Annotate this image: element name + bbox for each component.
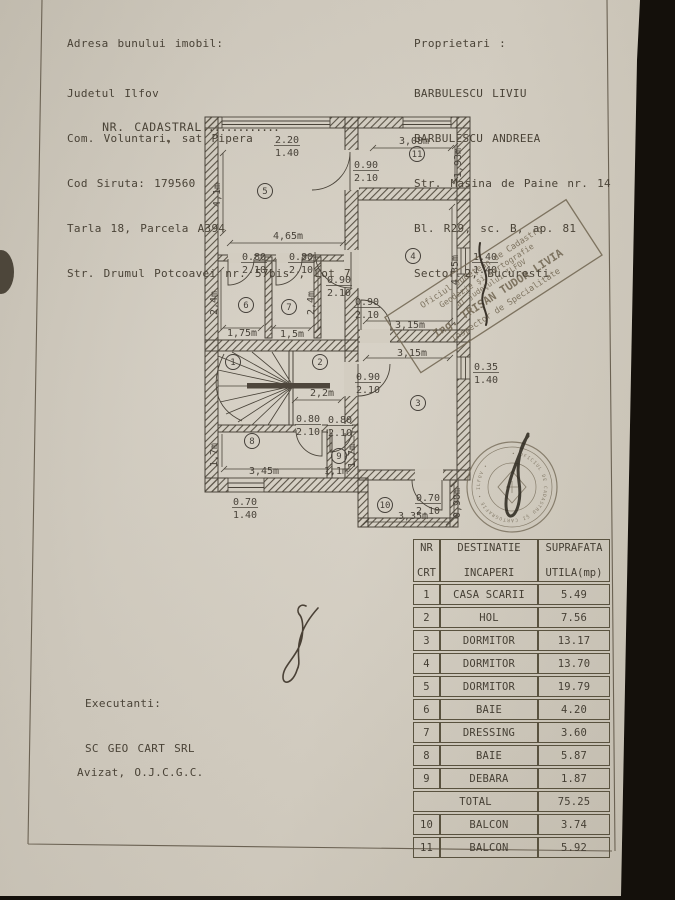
table-cell: 10 [413, 814, 440, 835]
edge-shadow-blob [0, 250, 14, 294]
plan-label: 1,7m [347, 444, 358, 468]
table-header-row: NRCRTDESTINATIEINCAPERISUPRAFATAUTILA(mp… [413, 539, 610, 582]
plan-label: 1.40 [474, 375, 498, 386]
cadastral-label: NR. CADASTRAL............. [64, 106, 279, 148]
table-header-cell: SUPRAFATAUTILA(mp) [538, 539, 610, 582]
address-line: Cod Siruta: 179560 [67, 176, 351, 191]
table-cell: 13.70 [538, 653, 610, 674]
table-cell: DORMITOR [440, 653, 538, 674]
plan-label: 0.90 [356, 372, 380, 383]
table-row: TOTAL75.25 [413, 791, 610, 812]
handwritten-signature [283, 605, 318, 682]
table-cell: 4 [413, 653, 440, 674]
plan-label: 2.10 [416, 506, 440, 517]
table-cell: 6 [413, 699, 440, 720]
owner-line: BARBULESCU LIVIU [414, 86, 611, 101]
plan-label: 2.10 [356, 385, 380, 396]
plan-label: 1 [230, 358, 235, 368]
table-cell: 9 [413, 768, 440, 789]
plan-label: 10 [380, 501, 391, 511]
table-cell: 2 [413, 607, 440, 628]
table-cell: BALCON [440, 837, 538, 858]
plan-label: 0.90 [355, 297, 379, 308]
table-row: 5DORMITOR19.79 [413, 676, 610, 697]
plan-label: 0.35 [474, 362, 498, 373]
table-cell: TOTAL [413, 791, 538, 812]
owner-line: Sector 2, Bucuresti [414, 266, 611, 281]
owner-line: Str. Masina de Paine nr. 14 [414, 176, 611, 191]
plan-label: 2.10 [354, 173, 378, 184]
table-cell: 5.49 [538, 584, 610, 605]
plan-label: 2 [317, 358, 322, 368]
plan-label: 3 [415, 399, 420, 409]
plan-label: 1,5m [280, 329, 304, 340]
plan-label: 3,15m [395, 320, 425, 331]
plan-label: 8 [249, 437, 254, 447]
round-stamp-signature [506, 434, 528, 516]
table-cell: DEBARA [440, 768, 538, 789]
table-cell: DORMITOR [440, 676, 538, 697]
plan-label: 1.40 [233, 510, 257, 521]
table-cell: HOL [440, 607, 538, 628]
table-cell: 11 [413, 837, 440, 858]
owners-block: Proprietari : BARBULESCU LIVIU BARBULESC… [414, 6, 611, 311]
table-cell: CASA SCARII [440, 584, 538, 605]
table-cell: 4.20 [538, 699, 610, 720]
address-block: Adresa bunului imobil: Judetul Ilfov Com… [67, 6, 351, 311]
table-row: 6BAIE4.20 [413, 699, 610, 720]
table-cell: 3 [413, 630, 440, 651]
address-line: Tarla 18, Parcela A394 [67, 221, 351, 236]
plan-label: 1,7m [209, 443, 220, 467]
plan-label: 1,75m [227, 328, 257, 339]
plan-label: 2.10 [296, 427, 320, 438]
table-row: 9DEBARA1.87 [413, 768, 610, 789]
table-row: 4DORMITOR13.70 [413, 653, 610, 674]
table-header-cell: NRCRT [413, 539, 440, 582]
plan-label: 1,1m [324, 466, 348, 477]
table-cell: 19.79 [538, 676, 610, 697]
table-row: 1CASA SCARII5.49 [413, 584, 610, 605]
plan-label: 2,2m [310, 388, 334, 399]
table-cell: 7.56 [538, 607, 610, 628]
plan-label: 9 [336, 452, 341, 462]
plan-label: 0.80 [296, 414, 320, 425]
table-cell: 1.87 [538, 768, 610, 789]
avizat-label: Avizat, O.J.C.G.C. [77, 765, 204, 780]
table-cell: 5 [413, 676, 440, 697]
table-cell: 7 [413, 722, 440, 743]
address-line: Judetul Ilfov [67, 86, 351, 101]
owner-line: BARBULESCU ANDREEA [414, 131, 611, 146]
address-title: Adresa bunului imobil: [67, 36, 351, 51]
round-stamp: • OFICIUL DE CADASTRU ŞI CARTOGRAFIE • I… [467, 442, 557, 532]
plan-label: 0.70 [416, 493, 440, 504]
plan-label: 0,90m [452, 488, 463, 518]
table-header-cell: DESTINATIEINCAPERI [440, 539, 538, 582]
table-cell: 13.17 [538, 630, 610, 651]
table-cell: BALCON [440, 814, 538, 835]
areas-table: NRCRTDESTINATIEINCAPERISUPRAFATAUTILA(mp… [413, 537, 610, 860]
table-row: 8BAIE5.87 [413, 745, 610, 766]
table-cell: BAIE [440, 745, 538, 766]
table-cell: 3.74 [538, 814, 610, 835]
plan-label: 3,45m [249, 466, 279, 477]
cadastral-dotted-line: ............. [202, 120, 279, 134]
owners-title: Proprietari : [414, 36, 611, 51]
table-row: 11BALCON5.92 [413, 837, 610, 858]
plan-label: 2.10 [355, 310, 379, 321]
plan-label: 0.70 [233, 497, 257, 508]
table-cell: 1 [413, 584, 440, 605]
owner-line: Bl. R29, sc. B, ap. 81 [414, 221, 611, 236]
table-cell: 75.25 [538, 791, 610, 812]
table-row: 7DRESSING3.60 [413, 722, 610, 743]
table-row: 10BALCON3.74 [413, 814, 610, 835]
plan-label: 2.10 [328, 428, 352, 439]
table-cell: BAIE [440, 699, 538, 720]
table-cell: DRESSING [440, 722, 538, 743]
table-row: 3DORMITOR13.17 [413, 630, 610, 651]
executant-title: Executanti: [85, 696, 195, 711]
plan-label: 0.90 [354, 160, 378, 171]
address-line: Str. Drumul Potcoavei nr. 57bis , Lot 7 [67, 266, 351, 281]
table-cell: 5.92 [538, 837, 610, 858]
executant-name: SC GEO CART SRL [85, 741, 195, 756]
table-cell: DORMITOR [440, 630, 538, 651]
table-row: 2HOL7.56 [413, 607, 610, 628]
plan-label: 0.80 [328, 415, 352, 426]
plan-label: 3,15m [397, 348, 427, 359]
table-cell: 5.87 [538, 745, 610, 766]
photo-background: 3,08m4,65m1,75m1,5m3,15m3,15m2,2m3,45m1,… [0, 0, 675, 900]
table-cell: 8 [413, 745, 440, 766]
table-cell: 3.60 [538, 722, 610, 743]
